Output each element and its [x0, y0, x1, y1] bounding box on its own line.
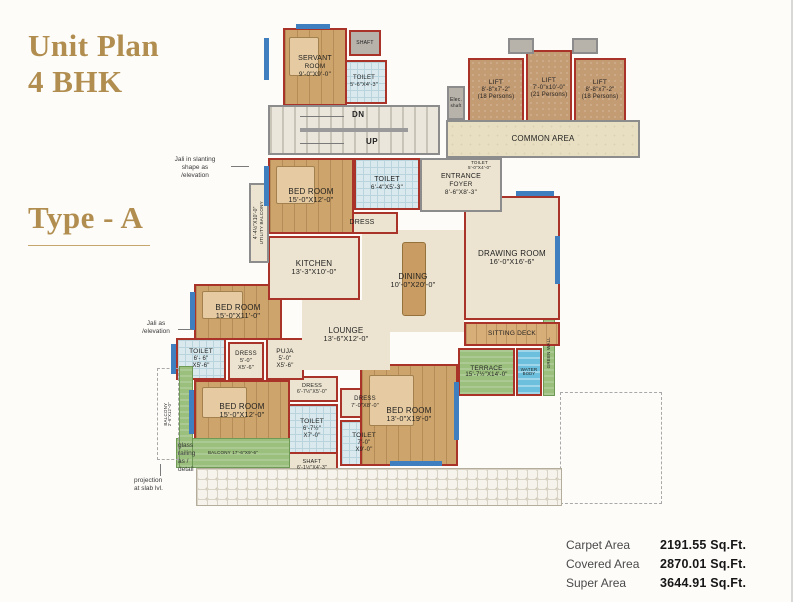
covered-area-value: 2870.01 Sq.Ft. [660, 557, 746, 571]
room-kitchen: KITCHEN13'-3"X10'-0" [268, 236, 360, 300]
room-water-body: WATERBODY [516, 348, 542, 396]
room-elec-shaft: Elec.shaft [447, 86, 465, 120]
super-area-value: 3644.91 Sq.Ft. [660, 576, 746, 590]
window-marker [189, 390, 194, 434]
covered-area-label: Covered Area [566, 557, 660, 571]
glass-railing-note: glassrailingas /detail [178, 442, 216, 475]
room-balcony-side: BALCONY2'-6"X12'-0" [157, 368, 179, 460]
window-marker [555, 236, 560, 284]
room-paver-strip [196, 468, 562, 506]
room-lift-2: LIFT7'-0"x10'-0"(21 Persons) [526, 50, 572, 126]
room-toilet-1: TOILET6'-4"X5'-3" [354, 158, 420, 210]
room-lift-1: LIFT8'-8"x7'-2"(18 Persons) [468, 58, 524, 122]
leader-line [160, 464, 161, 476]
jali-note: Jali as/elevation [134, 320, 178, 336]
room-drawing-room: DRAWING ROOM16'-0"X16'-6" [464, 196, 560, 320]
room-common-area: COMMON AREA [446, 120, 640, 158]
leader-line [300, 116, 344, 117]
projection-note: projectionat slab lvl. [134, 477, 190, 493]
room-lift-3: LIFT8'-8"x7'-2"(18 Persons) [574, 58, 626, 122]
window-marker [264, 38, 269, 80]
room-bedroom-1: BED ROOM15'-0"X12'-0" [268, 158, 354, 234]
room-dining: DINING10'-0"X20'-0" [362, 230, 464, 332]
stairs-dn-label: DN [352, 110, 365, 119]
stairs-up-label: UP [366, 137, 378, 146]
covered-area-row: Covered Area 2870.01 Sq.Ft. [566, 557, 746, 576]
room-servant-shaft: SHAFT [349, 30, 381, 56]
room-servant-toilet: TOILET5'-6"X4'-3" [341, 60, 387, 104]
leader-line [231, 166, 249, 167]
leader-line [178, 329, 192, 330]
carpet-area-row: Carpet Area 2191.55 Sq.Ft. [566, 538, 746, 557]
window-marker [516, 191, 554, 196]
area-statistics: Carpet Area 2191.55 Sq.Ft. Covered Area … [566, 538, 746, 595]
carpet-area-label: Carpet Area [566, 538, 660, 552]
room-dress-2: DRESS5'-0"X5'-6" [228, 342, 264, 380]
window-marker [264, 166, 269, 206]
room-puja: PUJA5'-0"X5'-6" [266, 338, 304, 380]
room-terrace: TERRACE15'-7½"X14'-0" [458, 348, 515, 396]
room-lift-shaft-a [508, 38, 534, 54]
window-marker [390, 461, 442, 466]
jali-slanting-note: Jali in slantingshape as/elevation [160, 156, 230, 180]
super-area-label: Super Area [566, 576, 660, 590]
window-marker [296, 24, 330, 29]
room-lift-shaft-b [572, 38, 598, 54]
room-bedroom-3: BED ROOM15'-0"X12'-0" [194, 380, 290, 442]
unit-plan-page: Unit Plan 4 BHK Type - A SHAFT6'-1½"X4'-… [0, 0, 793, 602]
room-projection-dashed-outline [560, 392, 662, 504]
super-area-row: Super Area 3644.91 Sq.Ft. [566, 576, 746, 595]
floor-plan: SHAFT6'-1½"X4'-3"TOILET7'-0"X9'-0"TOILET… [0, 0, 793, 602]
window-marker [454, 382, 459, 440]
room-toilet-3: TOILET6'-7½"X7'-0" [286, 404, 338, 454]
window-marker [171, 344, 176, 374]
leader-line [300, 143, 344, 144]
window-marker [190, 292, 195, 330]
room-servant-room: SERVANTROOM9'-0"X9'-0" [283, 28, 347, 106]
carpet-area-value: 2191.55 Sq.Ft. [660, 538, 746, 552]
